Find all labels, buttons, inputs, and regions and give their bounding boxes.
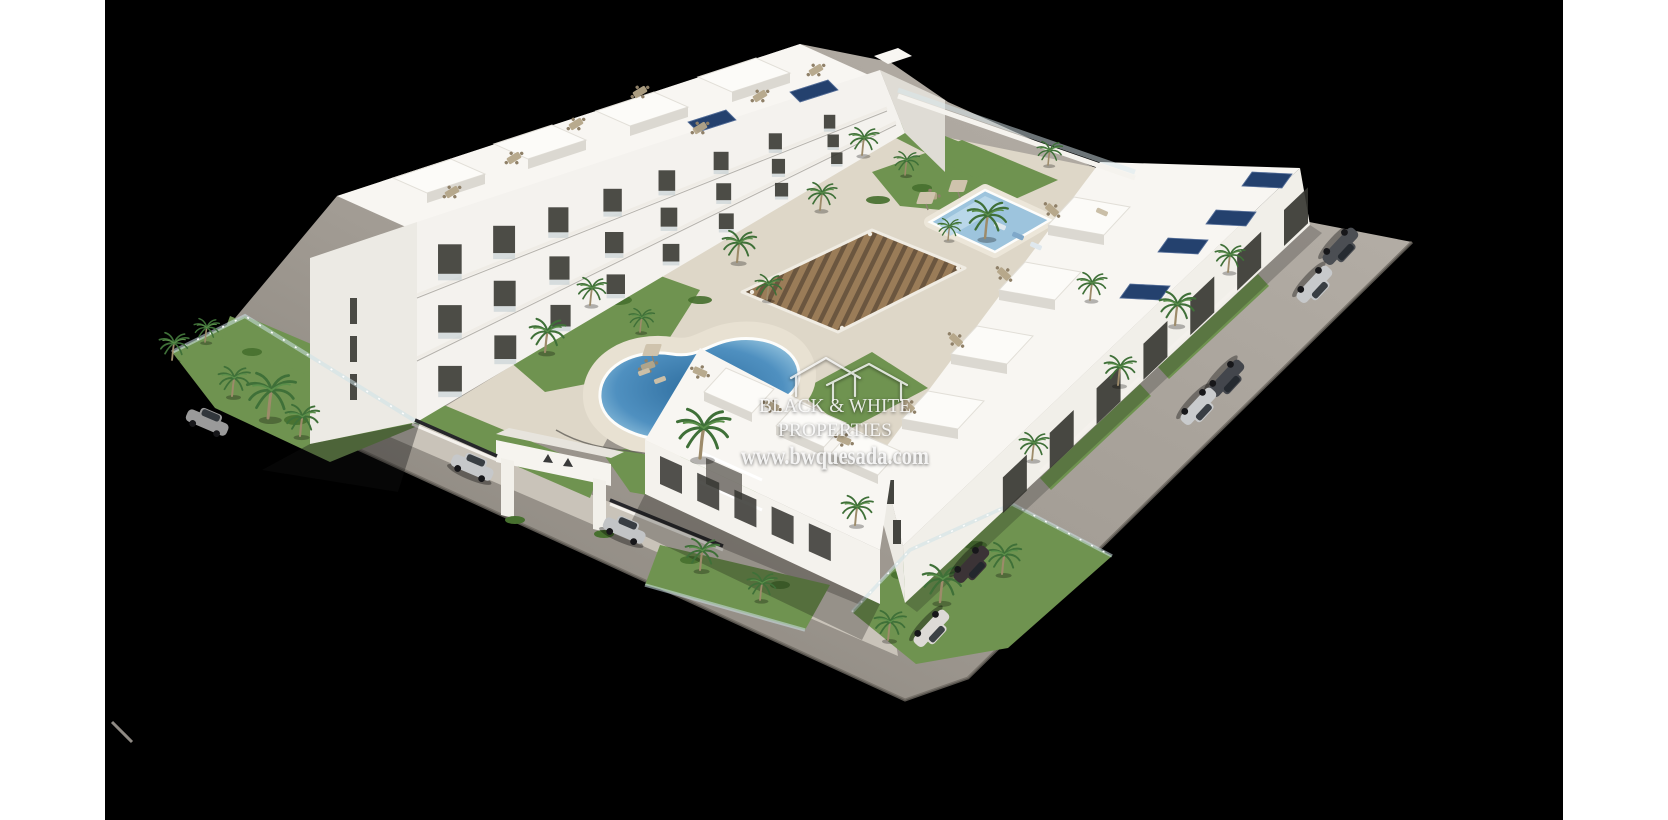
aerial-render-page: BLACK & WHITE PROPERTIES www.bwquesada.c… <box>0 0 1668 820</box>
aerial-render-image: BLACK & WHITE PROPERTIES www.bwquesada.c… <box>0 0 1668 820</box>
watermark-line-3: www.bwquesada.com <box>741 443 929 470</box>
watermark-line-1: BLACK & WHITE <box>759 395 911 417</box>
watermark-line-2: PROPERTIES <box>778 420 892 441</box>
